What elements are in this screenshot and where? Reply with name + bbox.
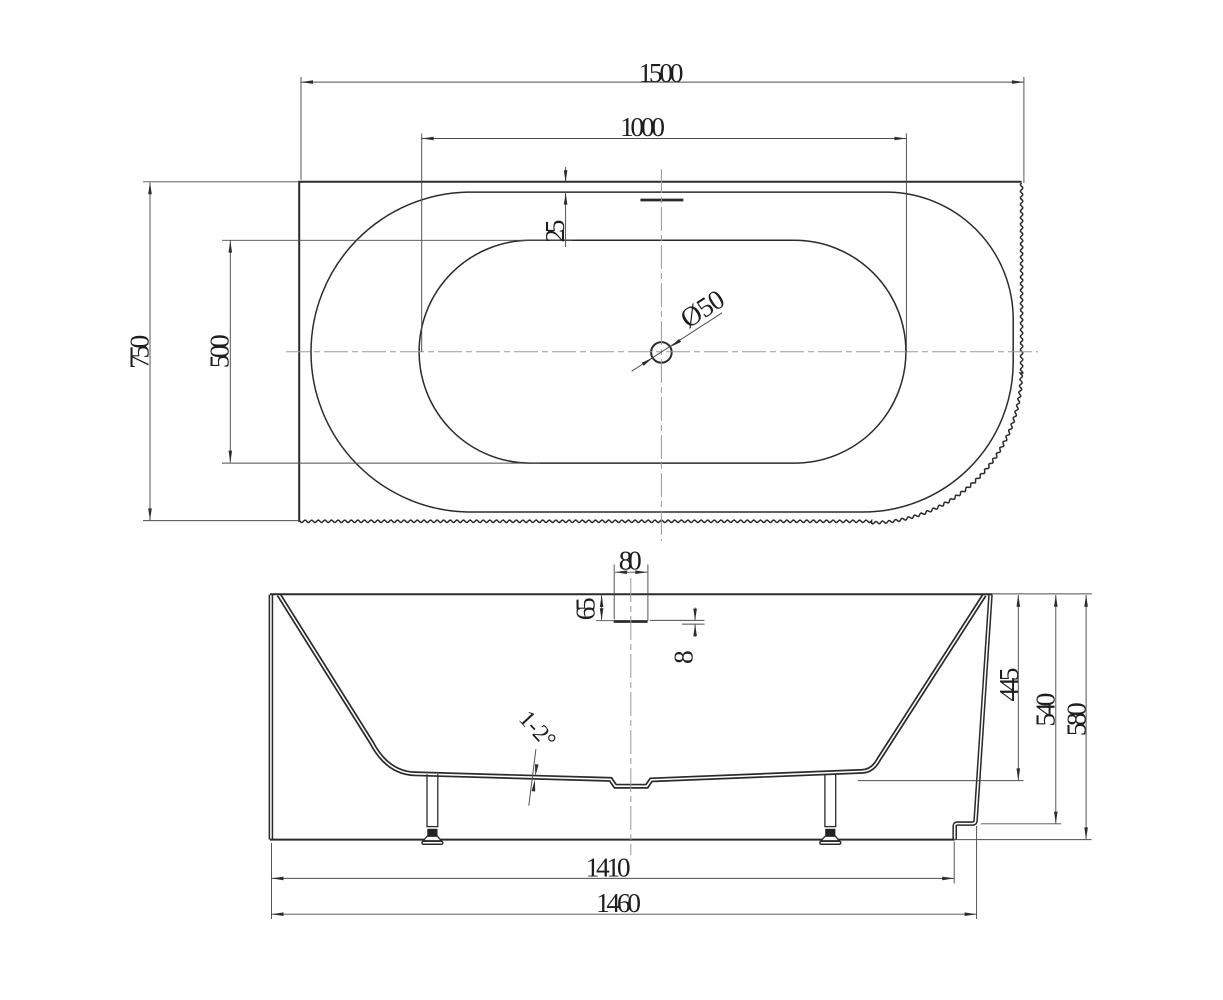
svg-text:750: 750 bbox=[124, 335, 155, 369]
svg-text:1460: 1460 bbox=[596, 887, 641, 918]
svg-text:65: 65 bbox=[569, 597, 600, 620]
svg-text:500: 500 bbox=[203, 334, 234, 368]
svg-text:1000: 1000 bbox=[620, 111, 665, 142]
svg-text:580: 580 bbox=[1060, 702, 1091, 736]
svg-text:540: 540 bbox=[1029, 693, 1060, 727]
svg-text:25: 25 bbox=[539, 220, 570, 243]
svg-text:445: 445 bbox=[993, 668, 1024, 702]
svg-text:80: 80 bbox=[619, 545, 642, 576]
svg-text:8: 8 bbox=[668, 650, 699, 664]
svg-text:1500: 1500 bbox=[639, 57, 684, 88]
svg-text:1410: 1410 bbox=[586, 852, 631, 883]
